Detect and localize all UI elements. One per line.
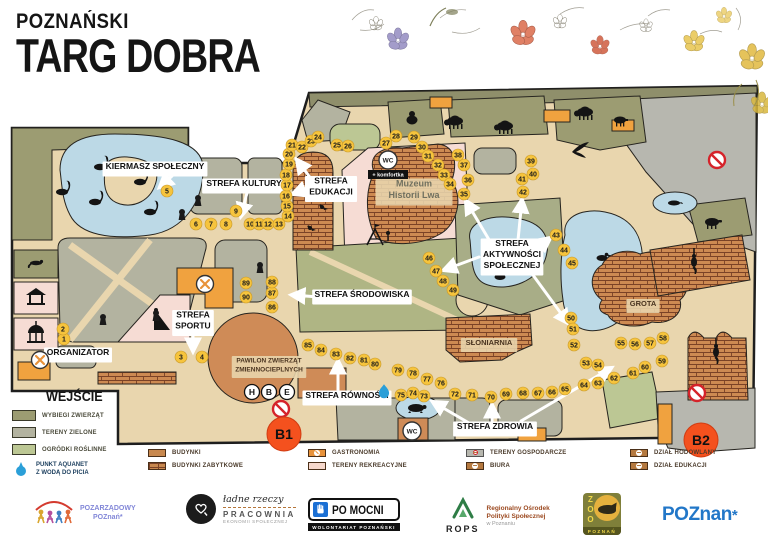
svg-text:25: 25 (333, 142, 341, 149)
svg-text:53: 53 (582, 360, 590, 367)
map-label-text: STREFA RÓWNOŚCI (305, 389, 388, 400)
svg-text:49: 49 (449, 287, 457, 294)
map-marker-35: 35 (458, 188, 470, 200)
no-entry-icon (709, 152, 725, 168)
map-label-organizator: ORGANIZATOR (44, 347, 112, 362)
svg-text:20: 20 (285, 151, 293, 158)
svg-text:41: 41 (518, 176, 526, 183)
svg-text:80: 80 (371, 361, 379, 368)
map-label-text: STREFA ŚRODOWISKA (314, 288, 409, 299)
map-label-kultury: STREFA KULTURY (202, 178, 286, 193)
hod-swatch-icon (630, 449, 648, 457)
svg-text:83: 83 (332, 351, 340, 358)
svg-text:26: 26 (344, 143, 352, 150)
map-marker-63: 63 (592, 377, 604, 389)
svg-text:77: 77 (423, 376, 431, 383)
map-marker-7: 7 (205, 218, 217, 230)
map-marker-84: 84 (315, 344, 327, 356)
statue-icon (153, 310, 160, 321)
map-marker-81: 81 (358, 354, 370, 366)
map-marker-45: 45 (566, 257, 578, 269)
map-marker-8: 8 (220, 218, 232, 230)
map-marker-61: 61 (627, 367, 639, 379)
svg-text:H: H (249, 387, 255, 397)
svg-text:62: 62 (610, 375, 618, 382)
svg-text:11: 11 (255, 221, 263, 228)
gastro-swatch-icon (308, 449, 326, 457)
svg-text:E: E (284, 387, 290, 397)
legend-swatch (12, 410, 36, 421)
svg-text:86: 86 (268, 304, 276, 311)
svg-text:18: 18 (282, 172, 290, 179)
svg-text:81: 81 (360, 357, 368, 364)
legend-label: TERENY GOSPODARCZE (490, 450, 567, 456)
buildings-legend-item: TERENY REKREACYJNE (308, 459, 407, 472)
svg-text:12: 12 (264, 221, 272, 228)
map-marker-55: 55 (615, 337, 627, 349)
svg-text:30: 30 (418, 144, 426, 151)
gray-swatch-icon (466, 449, 484, 457)
buildings-legend-item: BUDYNKI (148, 446, 243, 459)
map-marker-54: 54 (592, 359, 604, 371)
svg-text:43: 43 (552, 232, 560, 239)
pavilion-letter-B: B (262, 385, 277, 400)
svg-text:1: 1 (62, 336, 66, 343)
svg-text:7: 7 (209, 221, 213, 228)
buildings-legend: BUDYNKIBUDYNKI ZABYTKOWEGASTRONOMIATEREN… (0, 446, 768, 478)
zoo-poznan-logo: ZOO POZNAŃ (583, 493, 621, 535)
zoo-text: ZOO (586, 495, 595, 525)
map-label-text: STREFA (495, 238, 529, 248)
svg-text:60: 60 (641, 364, 649, 371)
buildings-legend-item: DZIAŁ EDUKACJI (630, 459, 716, 472)
svg-text:55: 55 (617, 340, 625, 347)
map-label-zdrowia: STREFA ZDROWIA (453, 421, 537, 436)
svg-text:65: 65 (561, 386, 569, 393)
pozarzadowy-line1: POZARZĄDOWY (80, 504, 136, 513)
svg-text:27: 27 (382, 140, 390, 147)
buildings-legend-item: BUDYNKI ZABYTKOWE (148, 459, 243, 472)
map-label-text: AKTYWNOŚCI (483, 248, 541, 259)
gastronomy-icon (32, 352, 49, 369)
svg-text:85: 85 (304, 342, 312, 349)
svg-text:29: 29 (410, 134, 418, 141)
map-marker-73: 73 (418, 390, 430, 402)
svg-text:3: 3 (179, 354, 183, 361)
map-marker-46: 46 (423, 252, 435, 264)
map-label-text: ORGANIZATOR (47, 347, 110, 357)
map-label-text: SŁONIARNIA (466, 338, 513, 347)
map-marker-50: 50 (565, 312, 577, 324)
svg-text:24: 24 (314, 134, 322, 141)
rops-logo: ROPS Regionalny Ośrodek Polityki Społecz… (446, 497, 550, 534)
svg-text:40: 40 (529, 171, 537, 178)
map-label-text: KIERMASZ SPOŁECZNY (106, 161, 205, 171)
map-label-text: PAWILON ZWIERZĄT (236, 358, 301, 365)
svg-text:WC: WC (383, 157, 394, 164)
svg-text:44: 44 (560, 247, 568, 254)
svg-text:21: 21 (288, 142, 296, 149)
statue-icon (257, 262, 264, 273)
map-marker-72: 72 (449, 388, 461, 400)
svg-text:57: 57 (646, 340, 654, 347)
legend-label: TERENY ZIELONE (42, 430, 97, 436)
legend-label: BIURA (490, 463, 510, 469)
svg-text:28: 28 (392, 133, 400, 140)
map-marker-58: 58 (657, 332, 669, 344)
svg-text:42: 42 (519, 189, 527, 196)
svg-text:88: 88 (268, 279, 276, 286)
poznan-city-logo: POZnan * (662, 504, 738, 526)
svg-text:34: 34 (446, 181, 454, 188)
map-marker-77: 77 (421, 373, 433, 385)
map-marker-67: 67 (532, 387, 544, 399)
legend-swatch (12, 427, 36, 438)
map-marker-76: 76 (435, 377, 447, 389)
map-marker-27: 27 (380, 137, 392, 149)
pracownia-script-text: ładne rzeczy (223, 494, 296, 505)
svg-text:WC: WC (407, 428, 418, 435)
svg-text:52: 52 (570, 342, 578, 349)
svg-text:+ komfortka: + komfortka (372, 172, 404, 178)
svg-text:69: 69 (502, 391, 510, 398)
pracownia-name: PRACOWNIA (223, 510, 296, 519)
map-marker-26: 26 (342, 140, 354, 152)
svg-text:33: 33 (440, 172, 448, 179)
title-line2: TARG DOBRA (16, 34, 260, 78)
map-marker-41: 41 (516, 173, 528, 185)
info-swatch-icon (466, 462, 484, 470)
legend-label: BUDYNKI ZABYTKOWE (172, 463, 243, 469)
rops-abbr: ROPS (446, 524, 480, 534)
svg-text:50: 50 (567, 315, 575, 322)
entrance-title: WEJŚCIE (46, 388, 123, 404)
svg-text:61: 61 (629, 370, 637, 377)
pavilion-letter-H: H (245, 385, 260, 400)
map-marker-25: 25 (331, 139, 343, 151)
svg-text:13: 13 (275, 221, 283, 228)
svg-text:36: 36 (464, 177, 472, 184)
svg-text:58: 58 (659, 335, 667, 342)
rops-line2: Polityki Społecznej (487, 513, 546, 520)
map-marker-74: 74 (407, 387, 419, 399)
map-label-text: GROTA (630, 299, 657, 308)
map-marker-43: 43 (550, 229, 562, 241)
map-marker-6: 6 (190, 218, 202, 230)
map-marker-52: 52 (568, 339, 580, 351)
map-label-text: SPOŁECZNEJ (484, 260, 541, 270)
map-marker-80: 80 (369, 358, 381, 370)
map-label-text: STREFA KULTURY (206, 178, 282, 188)
svg-text:89: 89 (242, 280, 250, 287)
map-marker-16: 16 (280, 190, 292, 202)
map-marker-66: 66 (546, 386, 558, 398)
map-label-text: STREFA ZDROWIA (457, 421, 533, 431)
pomocni-name: PO MOCNI (332, 503, 384, 517)
svg-text:31: 31 (424, 153, 432, 160)
map-label-text: SPORTU (175, 321, 210, 331)
entrance-legend-item: TERENY ZIELONE (12, 427, 132, 438)
svg-text:2: 2 (61, 326, 65, 333)
svg-text:72: 72 (451, 391, 459, 398)
svg-text:8: 8 (224, 221, 228, 228)
map-marker-39: 39 (525, 155, 537, 167)
statue-icon (179, 209, 186, 220)
svg-text:76: 76 (437, 380, 445, 387)
svg-text:48: 48 (439, 278, 447, 285)
no-entry-icon (689, 385, 705, 401)
map-marker-62: 62 (608, 372, 620, 384)
svg-text:90: 90 (242, 294, 250, 301)
statue-icon (100, 314, 107, 325)
svg-text:9: 9 (234, 208, 238, 215)
statue-icon (195, 195, 202, 206)
people-figures-icon (34, 500, 74, 526)
svg-text:15: 15 (283, 203, 291, 210)
svg-text:84: 84 (317, 347, 325, 354)
legend-label: BUDYNKI (172, 450, 201, 456)
map-marker-82: 82 (344, 352, 356, 364)
map-marker-59: 59 (656, 355, 668, 367)
map-marker-60: 60 (639, 361, 651, 373)
map-marker-9: 9 (230, 205, 242, 217)
map-marker-69: 69 (500, 388, 512, 400)
map-label-aktywnosci: STREFAAKTYWNOŚCISPOŁECZNEJ (481, 238, 544, 275)
map-marker-29: 29 (408, 131, 420, 143)
map-marker-42: 42 (517, 186, 529, 198)
map-marker-86: 86 (266, 301, 278, 313)
map-marker-57: 57 (644, 337, 656, 349)
svg-text:38: 38 (454, 152, 462, 159)
svg-text:B: B (266, 387, 272, 397)
map-label-text: ZMIENNOCIEPLNYCH (235, 367, 303, 374)
map-marker-64: 64 (578, 379, 590, 391)
map-marker-47: 47 (430, 265, 442, 277)
map-marker-12: 12 (262, 218, 274, 230)
legend-label: DZIAŁ EDUKACJI (654, 463, 707, 469)
pomocni-sub: WOLONTARIAT POZNAŃSKI (308, 523, 400, 531)
svg-text:46: 46 (425, 255, 433, 262)
map-marker-36: 36 (462, 174, 474, 186)
map-marker-18: 18 (280, 169, 292, 181)
gastronomy-icon (197, 276, 214, 293)
map-label-pawilon: PAWILON ZWIERZĄTZMIENNOCIEPLNYCH (232, 356, 306, 378)
brick-swatch-icon (148, 462, 166, 470)
svg-text:47: 47 (432, 268, 440, 275)
map-label-text: STREFA (314, 176, 348, 186)
footer-logos: POZARZĄDOWY POZnań* ładne rzeczy PRACOWN… (0, 490, 768, 541)
map-marker-89: 89 (240, 277, 252, 289)
map-marker-38: 38 (452, 149, 464, 161)
svg-text:70: 70 (487, 394, 495, 401)
svg-text:79: 79 (394, 367, 402, 374)
map-marker-40: 40 (527, 168, 539, 180)
map-marker-2: 2 (57, 323, 69, 335)
poznan-star: * (732, 507, 738, 524)
page-title: POZNAŃSKI TARG DOBRA (16, 10, 321, 78)
map-marker-65: 65 (559, 383, 571, 395)
pracownia-logo: ładne rzeczy PRACOWNIA EKONOMII SPOŁECZN… (186, 494, 296, 524)
buildings-legend-item: TERENY GOSPODARCZE (466, 446, 567, 459)
edu-swatch-icon (630, 462, 648, 470)
map-marker-87: 87 (266, 287, 278, 299)
buildings-legend-item: DZIAŁ HODOWLANY (630, 446, 716, 459)
plain-swatch-icon (148, 449, 166, 457)
svg-text:71: 71 (468, 392, 476, 399)
map-marker-90: 90 (240, 291, 252, 303)
map-label-text: Historii Lwa (388, 190, 440, 200)
map-label-grota: GROTA (626, 299, 659, 313)
map-label-text: EDUKACJI (309, 187, 352, 197)
legend-label: GASTRONOMIA (332, 450, 380, 456)
svg-text:68: 68 (519, 390, 527, 397)
map-marker-68: 68 (517, 387, 529, 399)
svg-text:87: 87 (268, 290, 276, 297)
map-label-muzeum: MuzeumHistorii Lwa (376, 178, 453, 205)
map-marker-34: 34 (444, 178, 456, 190)
svg-text:32: 32 (434, 162, 442, 169)
legend-label: TERENY REKREACYJNE (332, 463, 407, 469)
svg-text:82: 82 (346, 355, 354, 362)
svg-text:35: 35 (460, 191, 468, 198)
map-label-edukacji: STREFAEDUKACJI (305, 176, 357, 202)
svg-text:19: 19 (285, 161, 293, 168)
buildings-legend-item: BIURA (466, 459, 567, 472)
svg-text:66: 66 (548, 389, 556, 396)
svg-text:14: 14 (284, 213, 292, 220)
no-entry-icon (273, 401, 289, 417)
svg-text:39: 39 (527, 158, 535, 165)
svg-text:45: 45 (568, 260, 576, 267)
svg-text:64: 64 (580, 382, 588, 389)
map-marker-3: 3 (175, 351, 187, 363)
map-marker-83: 83 (330, 348, 342, 360)
map-marker-85: 85 (302, 339, 314, 351)
map-marker-4: 4 (196, 351, 208, 363)
map-marker-28: 28 (390, 130, 402, 142)
map-label-rownosci: STREFA RÓWNOŚCI (302, 389, 391, 405)
wc-icon: WC (403, 422, 421, 440)
svg-text:51: 51 (569, 326, 577, 333)
map-marker-75: 75 (395, 389, 407, 401)
pavilion-letter-E: E (280, 385, 295, 400)
svg-text:56: 56 (631, 341, 639, 348)
svg-text:73: 73 (420, 393, 428, 400)
svg-text:59: 59 (658, 358, 666, 365)
map-marker-48: 48 (437, 275, 449, 287)
rops-triangle-icon (450, 497, 476, 519)
svg-text:74: 74 (409, 390, 417, 397)
zoo-city: POZNAŃ (583, 527, 621, 535)
map-marker-49: 49 (447, 284, 459, 296)
heart-magnifier-icon (186, 494, 216, 524)
svg-text:17: 17 (283, 182, 291, 189)
rops-line1: Regionalny Ośrodek (487, 505, 550, 512)
svg-text:16: 16 (282, 193, 290, 200)
map-marker-71: 71 (466, 389, 478, 401)
pomocni-logo: PO MOCNI WOLONTARIAT POZNAŃSKI (308, 498, 400, 531)
map-label-sloniarnia: SŁONIARNIA (461, 338, 518, 352)
map-marker-53: 53 (580, 357, 592, 369)
map-marker-56: 56 (629, 338, 641, 350)
svg-text:75: 75 (397, 392, 405, 399)
map-label-text: Muzeum (396, 178, 432, 188)
map-marker-88: 88 (266, 276, 278, 288)
poznan-text: POZnan (662, 504, 732, 526)
map-marker-51: 51 (567, 323, 579, 335)
svg-text:4: 4 (200, 354, 204, 361)
map-marker-5: 5 (161, 185, 173, 197)
rops-sub: w Poznaniu (487, 521, 550, 527)
svg-text:37: 37 (460, 162, 468, 169)
map-marker-79: 79 (392, 364, 404, 376)
map-marker-44: 44 (558, 244, 570, 256)
entrance-legend-item: WYBIEGI ZWIERZĄT (12, 410, 132, 421)
svg-text:B1: B1 (275, 426, 293, 442)
map-label-sportu: STREFASPORTU (172, 310, 214, 336)
map-label-srodowiska: STREFA ŚRODOWISKA (312, 288, 412, 304)
svg-text:6: 6 (194, 221, 198, 228)
legend-label: DZIAŁ HODOWLANY (654, 450, 716, 456)
map-marker-31: 31 (422, 150, 434, 162)
targ-dobra-map-flyer: POZNAŃSKI TARG DOBRA (0, 0, 768, 541)
pozarzadowy-line2: POZnań* (80, 513, 136, 522)
pink-swatch-icon (308, 462, 326, 470)
svg-text:67: 67 (534, 390, 542, 397)
map-marker-70: 70 (485, 391, 497, 403)
svg-text:78: 78 (409, 370, 417, 377)
map-marker-24: 24 (312, 131, 324, 143)
legend-label: WYBIEGI ZWIERZĄT (42, 413, 104, 419)
svg-text:5: 5 (165, 188, 169, 195)
hand-icon (313, 502, 328, 517)
buildings-legend-item: GASTRONOMIA (308, 446, 407, 459)
pracownia-sub: EKONOMII SPOŁECZNEJ (223, 519, 296, 524)
pozarzadowy-poznan-logo: POZARZĄDOWY POZnań* (34, 500, 136, 526)
map-label-text: STREFA (176, 310, 210, 320)
svg-text:54: 54 (594, 362, 602, 369)
svg-text:22: 22 (298, 144, 306, 151)
svg-text:63: 63 (594, 380, 602, 387)
map-marker-78: 78 (407, 367, 419, 379)
map-label-kiermasz: KIERMASZ SPOŁECZNY (103, 161, 208, 176)
